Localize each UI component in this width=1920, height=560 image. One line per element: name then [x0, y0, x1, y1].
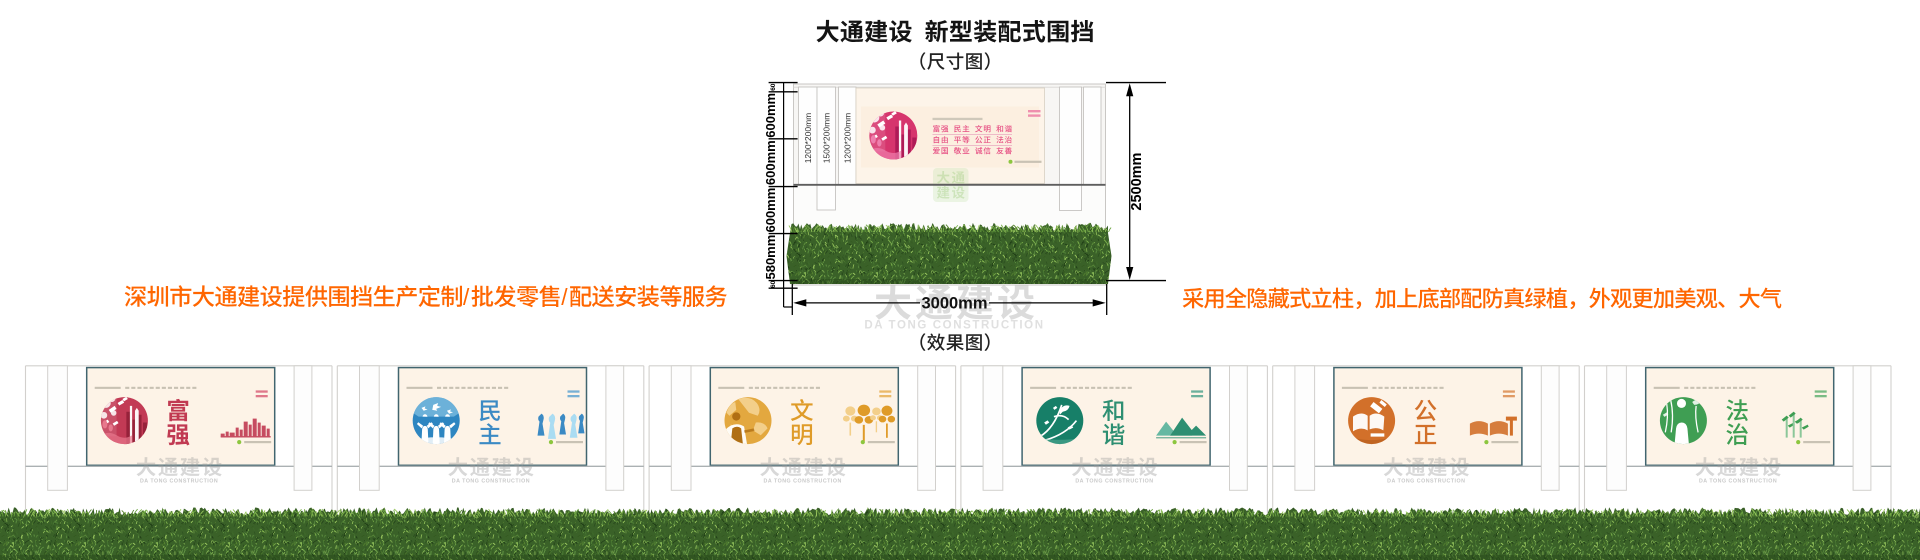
- svg-text:DA TONG CONSTRUCTION: DA TONG CONSTRUCTION: [1387, 478, 1465, 484]
- svg-text:DA TONG CONSTRUCTION: DA TONG CONSTRUCTION: [1075, 478, 1153, 484]
- svg-text:/: /: [561, 284, 568, 310]
- svg-text:DA TONG CONSTRUCTION: DA TONG CONSTRUCTION: [452, 478, 530, 484]
- svg-text:1200*200mm: 1200*200mm: [803, 113, 813, 164]
- svg-text:1200*200mm: 1200*200mm: [842, 113, 852, 164]
- svg-text:600mm: 600mm: [763, 93, 778, 138]
- svg-text:3000mm: 3000mm: [921, 294, 987, 312]
- svg-text:DA TONG CONSTRUCTION: DA TONG CONSTRUCTION: [764, 478, 842, 484]
- svg-text:580mm: 580mm: [763, 235, 778, 280]
- svg-text:DA TONG CONSTRUCTION: DA TONG CONSTRUCTION: [864, 320, 1044, 332]
- svg-text:60: 60: [770, 83, 777, 91]
- svg-text:DA TONG CONSTRUCTION: DA TONG CONSTRUCTION: [1699, 478, 1777, 484]
- svg-text:2500mm: 2500mm: [1129, 153, 1145, 211]
- svg-text:1500*200mm: 1500*200mm: [821, 113, 831, 164]
- svg-text:DA TONG CONSTRUCTION: DA TONG CONSTRUCTION: [140, 478, 218, 484]
- svg-text:600mm: 600mm: [763, 188, 778, 233]
- svg-text:600mm: 600mm: [763, 140, 778, 185]
- svg-text:/: /: [463, 284, 470, 310]
- svg-text:60: 60: [770, 280, 777, 288]
